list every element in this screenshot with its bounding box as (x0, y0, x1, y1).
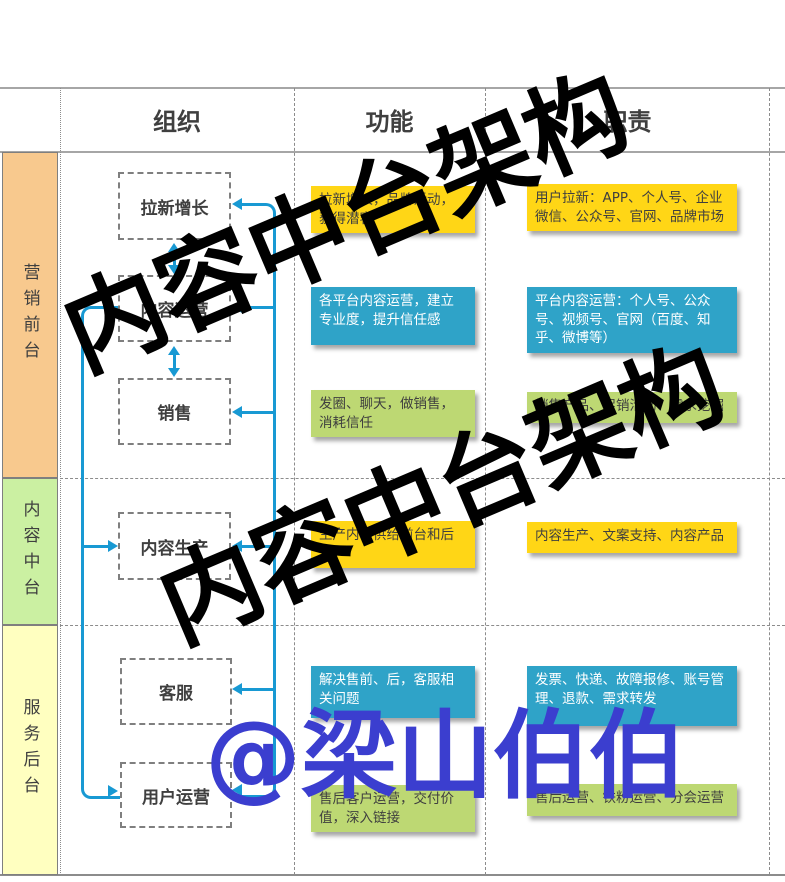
arrow-right-icon (108, 540, 118, 552)
sidebar-group-label: 内容中台 (18, 500, 43, 604)
grid-vline-sidebar (60, 88, 61, 875)
org-box-user-acquisition: 拉新增长 (118, 172, 231, 240)
branch-line (241, 688, 273, 691)
column-header-duty: 职责 (485, 88, 770, 151)
sidebar-group-label: 营销前台 (18, 263, 43, 367)
arrow-left-icon (232, 406, 242, 418)
grid-vline-org-function (294, 88, 295, 875)
function-box-customer-service: 解决售前、后，客服相关问题 (311, 666, 475, 718)
org-box-sales: 销售 (118, 378, 231, 445)
function-box-content-production: 生产内容供给前台和后台 (311, 521, 475, 568)
org-box-content-production: 内容生产 (118, 512, 231, 580)
left-bus-connector (81, 306, 120, 799)
watermark-text-lower: 内容中台架构 (142, 323, 741, 668)
grid-line-header-bottom (0, 151, 785, 153)
arrow-right-icon (108, 785, 118, 797)
org-box-user-operation: 用户运营 (120, 762, 232, 828)
duty-box-user-acquisition: 用户拉新：APP、个人号、企业微信、公众号、官网、品牌市场 (527, 184, 737, 231)
duty-box-content-operation: 平台内容运营：个人号、公众号、视频号、官网（百度、知乎、微博等） (527, 287, 737, 353)
grid-hline-marketing-middle (60, 478, 785, 479)
function-box-user-operation: 售后客户运营，交付价值，深入链接 (311, 785, 475, 832)
sidebar-group-service-back: 服务后台 (2, 625, 58, 875)
branch-line (241, 411, 273, 414)
duty-box-sales: 销售产品、促销活动、需求挖掘 (527, 392, 737, 423)
column-header-organization: 组织 (60, 88, 294, 151)
grid-line-bottom (0, 874, 785, 876)
branch-line (241, 545, 273, 548)
org-box-content-operation: 内容运营 (118, 275, 231, 342)
grid-hline-middle-service (60, 625, 785, 626)
duty-box-user-operation: 售后运营、铁粉运营、分会运营 (527, 784, 737, 816)
function-box-sales: 发圈、聊天，做销售，消耗信任 (311, 390, 475, 437)
grid-vline-function-duty (485, 88, 486, 875)
arrow-left-icon (232, 784, 242, 796)
arrow-left-icon (232, 198, 242, 210)
arrow-left-icon (232, 540, 242, 552)
branch-line (241, 306, 273, 309)
arrow-down-icon (168, 368, 180, 377)
sidebar-group-content-middle: 内容中台 (2, 478, 58, 625)
arrow-left-icon (232, 301, 242, 313)
arrow-left-icon (232, 683, 242, 695)
right-bus-connector (240, 203, 276, 798)
branch-line (84, 545, 110, 548)
sidebar-group-marketing-front: 营销前台 (2, 152, 58, 478)
function-box-content-operation: 各平台内容运营，建立专业度，提升信任感 (311, 287, 475, 345)
duty-box-customer-service: 发票、快递、故障报修、账号管理、退款、需求转发 (527, 666, 737, 726)
duty-box-content-production: 内容生产、文案支持、内容产品 (527, 522, 737, 553)
org-box-customer-service: 客服 (120, 658, 232, 725)
sidebar-group-label: 服务后台 (18, 698, 43, 802)
function-box-user-acquisition: 拉新增长，品牌活动，获得潜客 (311, 186, 475, 233)
arrow-down-icon (168, 265, 180, 274)
grid-vline-right (769, 88, 770, 875)
diagram-canvas: 组织 功能 职责 营销前台 内容中台 服务后台 拉新增长 内容运营 销售 内容生… (0, 0, 785, 882)
column-header-function: 功能 (294, 88, 485, 151)
